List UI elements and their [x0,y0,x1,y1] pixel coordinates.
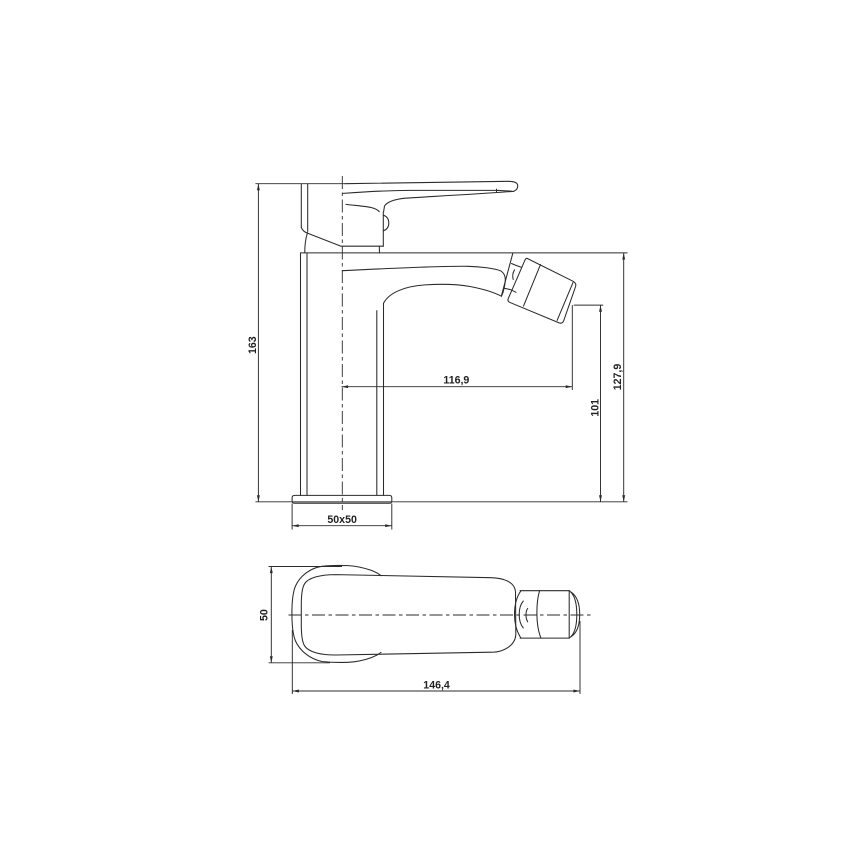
svg-text:163: 163 [247,336,259,354]
svg-text:127,9: 127,9 [612,364,624,391]
svg-text:50: 50 [259,609,271,621]
svg-text:101: 101 [589,399,601,417]
svg-text:146,4: 146,4 [423,680,450,692]
svg-text:116,9: 116,9 [443,374,469,386]
svg-text:50x50: 50x50 [327,514,357,526]
